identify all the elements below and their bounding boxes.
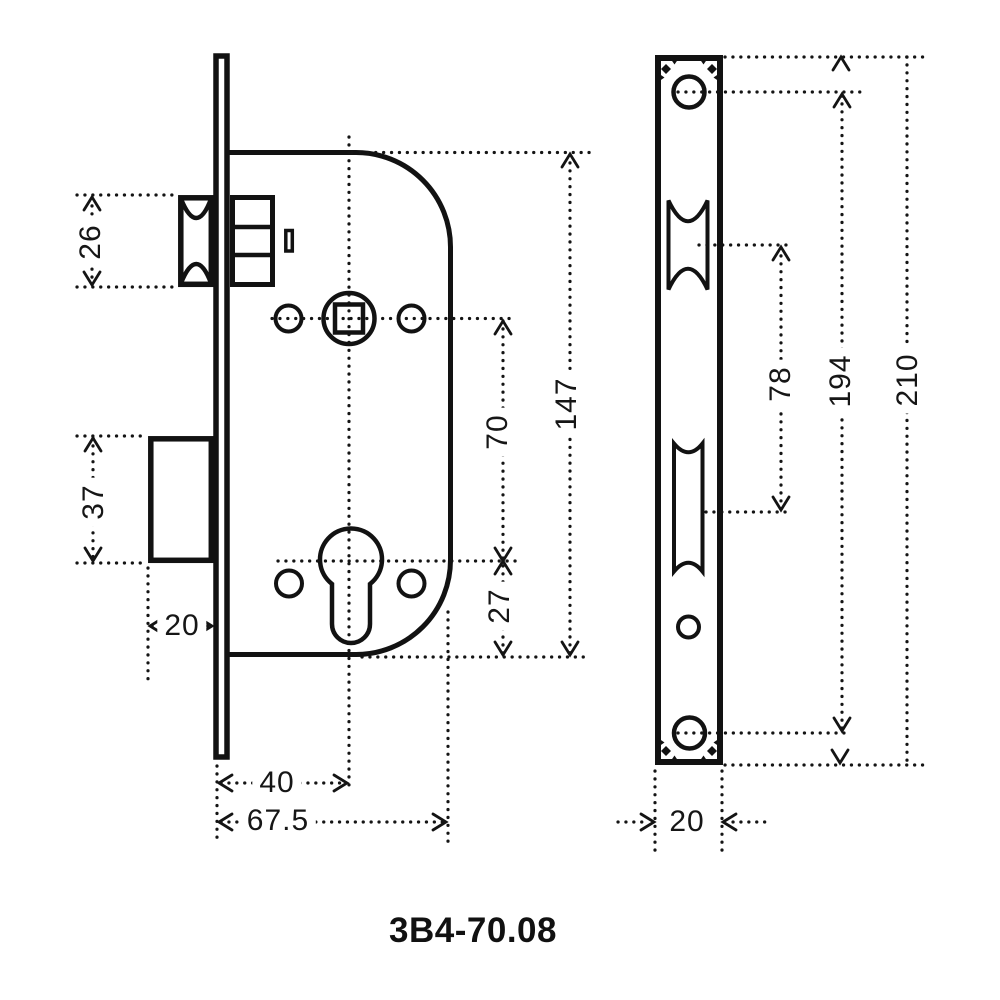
euro-cylinder-hole: [320, 529, 382, 643]
dim-label-spindle-cylinder: 70: [482, 407, 514, 456]
dim-label-backset: 40: [252, 767, 301, 799]
fixing-hole-bottom-right: [399, 571, 425, 597]
latch-bolt-bevel-top: [181, 199, 211, 218]
side-view: [151, 56, 451, 757]
drawing-title: 3B4-70.08: [389, 911, 557, 951]
deadbolt-cutout: [674, 444, 703, 572]
dim-label-latch-to-deadbolt: 78: [765, 359, 797, 408]
dim-label-body-depth: 67.5: [240, 805, 316, 837]
dim-label-screw-spacing: 194: [825, 347, 857, 414]
dim-label-deadbolt-throw: 20: [157, 610, 206, 642]
fixing-hole-bottom-left: [276, 571, 302, 597]
front-view: [658, 58, 720, 762]
faceplate-edge: [216, 56, 227, 757]
latch-bolt-bevel-bottom: [181, 264, 211, 283]
deadbolt: [151, 439, 212, 561]
dim-label-faceplate-length: 210: [892, 346, 924, 413]
corner-hatch-top-right: [699, 58, 720, 82]
mortise-lock-technical-drawing: 26 37 20 40 67.5 70 27 147 78 194 210 20…: [0, 0, 1000, 1000]
dim-label-cylinder-bottom: 27: [484, 581, 516, 630]
stop-slot: [286, 231, 293, 252]
latch-cutout: [669, 201, 708, 290]
latch-housing: [233, 198, 273, 285]
dim-label-latch-height: 26: [75, 217, 107, 266]
corner-hatch-top-left: [658, 58, 679, 82]
drawing-canvas: [0, 0, 1000, 1000]
dim-label-body-height: 147: [551, 370, 583, 437]
dim-label-deadbolt-height: 37: [78, 477, 110, 526]
dim-label-faceplate-width: 20: [662, 806, 711, 838]
pin-hole: [678, 617, 699, 638]
dimension-arrows: [84, 57, 850, 830]
faceplate-front: [658, 58, 720, 762]
